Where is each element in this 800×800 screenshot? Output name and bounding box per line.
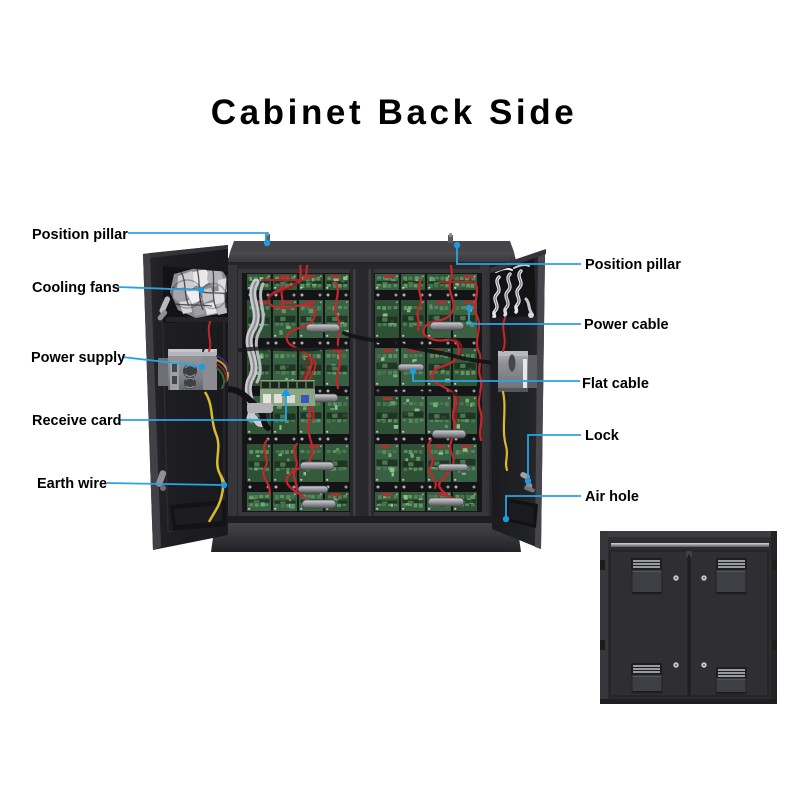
svg-text:Power cable: Power cable <box>584 317 669 333</box>
svg-text:Receive card: Receive card <box>32 413 121 429</box>
svg-text:Power supply: Power supply <box>31 350 125 366</box>
svg-text:Flat cable: Flat cable <box>582 376 649 392</box>
svg-text:Air hole: Air hole <box>585 489 639 505</box>
svg-text:Lock: Lock <box>585 428 620 444</box>
svg-text:Position pillar: Position pillar <box>32 227 128 243</box>
svg-text:Cabinet Back Side: Cabinet Back Side <box>211 93 578 132</box>
svg-text:Position pillar: Position pillar <box>585 257 681 273</box>
svg-text:Earth wire: Earth wire <box>37 476 107 492</box>
svg-text:Cooling fans: Cooling fans <box>32 280 120 296</box>
